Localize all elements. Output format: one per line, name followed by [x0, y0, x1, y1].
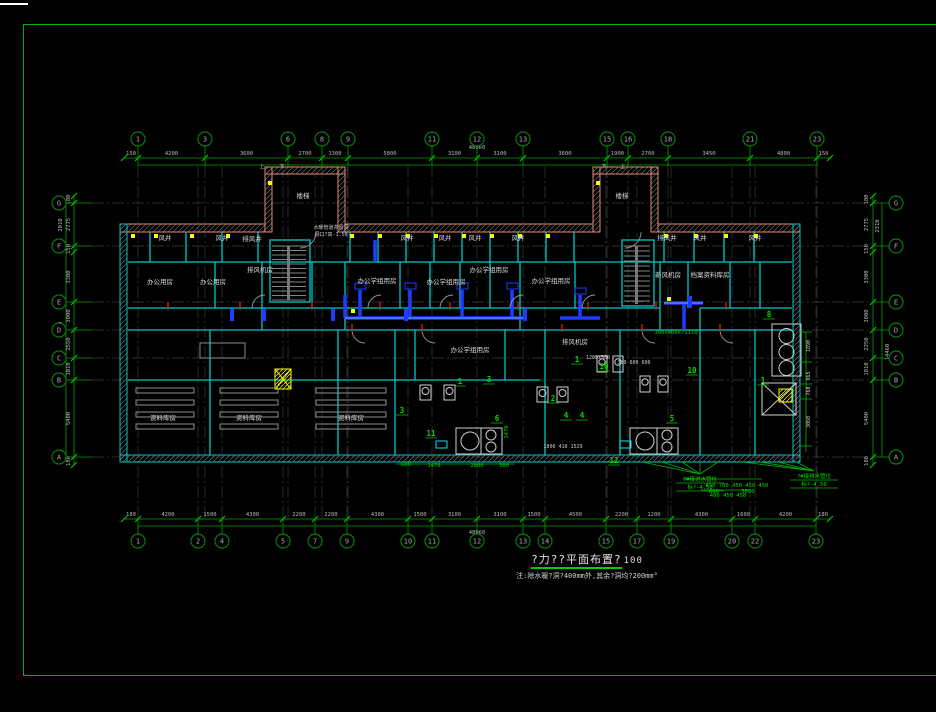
dimension-text: 1500 — [527, 512, 540, 518]
partitions-layer — [128, 232, 792, 455]
callout-number: 1 — [458, 377, 463, 386]
room-label: 风井 — [439, 233, 453, 242]
grid-bubble-label: 4 — [220, 538, 224, 546]
dimension-text: 4300 — [246, 512, 259, 518]
grid-bubble-label: C — [57, 355, 61, 363]
dimension-text: 5400 — [864, 412, 870, 425]
grid-bubble-label: 1 — [136, 136, 140, 144]
grid-bubble-label: 23 — [813, 136, 821, 144]
plan-dimension-text: 下 — [601, 164, 606, 170]
grid-bubble-layer: 1368911121315161821231245791011121314151… — [52, 132, 903, 548]
room-label: 排风井 — [657, 233, 677, 242]
hatched-shaft-box — [779, 389, 792, 402]
dimension-text: 180 — [864, 195, 870, 205]
dimension-text: 4200 — [161, 512, 174, 518]
drawing-note: 注:除水暖?洞?400mm外,其余?洞均?200mm° — [462, 571, 712, 581]
grid-bubble-label: C — [894, 355, 898, 363]
dimension-text: 150 — [819, 151, 829, 157]
air-handling-unit — [456, 428, 502, 454]
room-label: 风井 — [469, 233, 483, 242]
grid-bubble-label: 17 — [633, 538, 641, 546]
grid-bubble-label: 19 — [667, 538, 675, 546]
room-label: 资料库房 — [236, 413, 262, 422]
grid-bubble-label: 20 — [728, 538, 736, 546]
plan-dimension-text: 300 — [499, 463, 509, 469]
room-label: 新风机房 — [655, 270, 681, 279]
dimension-text: 3450 — [702, 151, 715, 157]
grid-bubble-label: D — [894, 327, 898, 335]
dimension-text: 150 — [66, 244, 72, 254]
callout-layer: 1326113441210181015 — [396, 310, 775, 465]
grid-bubble-label: E — [894, 299, 898, 307]
grid-bubble-label: 11 — [428, 538, 436, 546]
dimension-text: 1200 — [647, 512, 660, 518]
grid-bubble-label: 16 — [624, 136, 632, 144]
room-label-layer: 楼梯楼梯风井风井排风井风井风井风井风井排风井风井风井办公用房办公用房排风机房办公… — [147, 163, 812, 499]
annotation-text: 7#接进水管位 — [683, 475, 718, 483]
room-label: 风井 — [512, 233, 526, 242]
grid-bubble-label: B — [894, 377, 898, 385]
callout-number: 5 — [670, 414, 675, 423]
dimension-text: 150 — [126, 151, 136, 157]
dimension-text: 5400 — [66, 412, 72, 425]
room-label: 办公用房 — [147, 277, 173, 286]
dimension-text: 3600 — [558, 151, 571, 157]
dimension-text: 3600 — [240, 151, 253, 157]
room-label: 办公学组用房 — [532, 276, 571, 285]
grid-bubble-label: 10 — [404, 538, 412, 546]
dimension-text: 4500 — [569, 512, 582, 518]
callout-number: 10 — [687, 366, 697, 375]
dimension-outer: 2310 — [875, 219, 881, 232]
dimension-text: 180 — [126, 512, 136, 518]
plan-dimension-text: 3060 — [806, 416, 812, 428]
dimension-text: 3300 — [66, 270, 72, 283]
plan-dimension-text: 1200x500 — [586, 355, 610, 361]
plan-dimension-text: 1800 410 1529 — [543, 444, 582, 450]
plan-note: 洞口?高-1.50 — [314, 231, 347, 238]
grid-bubble-label: B — [57, 377, 61, 385]
plan-dimension-text: 600 — [401, 462, 411, 468]
grid-bubble-label: 13 — [519, 538, 527, 546]
room-label: 档案资料库房 — [691, 270, 730, 279]
grid-bubble-label: 12 — [473, 538, 481, 546]
grid-bubble-label: 3 — [203, 136, 207, 144]
dimension-text: 3000 — [66, 309, 72, 322]
grid-bubble-label: 15 — [603, 136, 611, 144]
grid-bubble-label: F — [57, 243, 61, 251]
callout-number: 8 — [767, 310, 772, 319]
plan-dimension-text: 400 450 450 — [710, 493, 746, 499]
dimension-text: 1010 — [864, 362, 870, 375]
dimension-text: 5800 — [383, 151, 396, 157]
room-label: 资料库房 — [338, 413, 364, 422]
dimension-text: 2775 — [864, 218, 870, 231]
grid-bubble-label: 12 — [473, 136, 481, 144]
callout-number: 12 — [609, 456, 618, 465]
plan-dimension-text: 上 — [620, 163, 625, 170]
callout-number: 3 — [400, 406, 405, 415]
callout-number: 4 — [580, 411, 585, 420]
grid-bubble-label: 13 — [519, 136, 527, 144]
dimension-text: 2700 — [298, 151, 311, 157]
grid-bubble-label: 21 — [746, 136, 754, 144]
room-label: 排风机房 — [562, 337, 588, 346]
grid-bubble-label: 22 — [751, 538, 759, 546]
dimension-text: 3300 — [864, 270, 870, 283]
room-label: 办公学组用房 — [427, 277, 466, 286]
grid-bubble-label: 1 — [136, 538, 140, 546]
plan-dimension-text: 1890 — [806, 340, 812, 352]
dimension-text: 2550 — [66, 337, 72, 350]
drawing-scale: 100 — [624, 556, 643, 566]
dimension-text: 4300 — [695, 512, 708, 518]
callout-number: 2 — [551, 394, 556, 403]
plan-dimension-text: 760 — [806, 386, 812, 395]
room-label: 办公学组用房 — [451, 345, 490, 354]
plan-dimension-text: 2800 — [470, 463, 483, 469]
room-label: 风井 — [749, 233, 763, 242]
dimension-text: 2775 — [66, 218, 72, 231]
dimension-text: 180 — [66, 456, 72, 466]
dimension-text: 180 — [818, 512, 828, 518]
grid-bubble-label: 5 — [281, 538, 285, 546]
callout-number: 10 — [599, 362, 609, 371]
drawing-title-block: ?力??平面布置?100 注:除水暖?洞?400mm外,其余?洞均?200mm° — [462, 551, 712, 581]
callout-number: 11 — [426, 429, 436, 438]
dimension-text: 4300 — [371, 512, 384, 518]
room-label: 办公学组用房 — [470, 265, 509, 274]
room-label: 排风井 — [242, 234, 262, 243]
plan-dimension-text: 300 600 600 — [617, 360, 650, 366]
callout-number: 6 — [495, 414, 500, 423]
grid-bubble-label: 15 — [602, 538, 610, 546]
plan-dimension-text: 上 — [259, 163, 264, 170]
dimension-text: 4800 — [777, 151, 790, 157]
grid-bubble-label: E — [57, 299, 61, 307]
dimension-text: 2200 — [615, 512, 628, 518]
dimension-text: 180 — [864, 456, 870, 466]
callout-number: 1 — [761, 376, 766, 385]
annotation-text: 标?-4.50 — [801, 480, 826, 488]
callout-number: 3 — [487, 375, 492, 384]
drawing-title: ?力??平面布置? — [531, 553, 622, 569]
plan-dimension-text: 450 700 450 450 450 — [706, 483, 769, 489]
plan-dimension-text: 865 — [806, 371, 812, 380]
callout-number: 1 — [575, 355, 580, 364]
room-label: 办公用房 — [200, 277, 226, 286]
dimension-text: 3100 — [493, 512, 506, 518]
floor-plan-canvas[interactable]: 1504200360027001300580031003100360019002… — [0, 0, 936, 712]
dimension-text: 1500 — [203, 512, 216, 518]
grid-bubble-label: 7 — [313, 538, 317, 546]
room-label: 风井 — [159, 233, 173, 242]
plan-dimension-text: 下 — [279, 164, 284, 170]
room-label: 资料库房 — [150, 413, 176, 422]
plan-note: 水暖管道井留洞 — [313, 224, 348, 231]
room-label: 办公学组用房 — [358, 276, 397, 285]
grid-bubble-label: 11 — [428, 136, 436, 144]
dimension-text: 2700 — [641, 151, 654, 157]
dimension-text: 4200 — [779, 512, 792, 518]
grid-bubble-label: 9 — [345, 538, 349, 546]
plan-dimension-text: 300x400x?1110 — [654, 330, 697, 336]
dimension-text: 1900 — [611, 151, 624, 157]
grid-bubble-label: 23 — [812, 538, 820, 546]
dimension-text: 2250 — [864, 337, 870, 350]
dimension-text: 1300 — [328, 151, 341, 157]
grid-bubble-label: F — [894, 243, 898, 251]
grid-bubble-label: 2 — [196, 538, 200, 546]
grid-bubble-label: D — [57, 327, 61, 335]
cad-viewport[interactable]: 1504200360027001300580031003100360019002… — [0, 0, 936, 712]
grid-bubble-label: G — [894, 200, 898, 208]
grid-bubble-label: 14 — [541, 538, 549, 546]
room-label: 排风机房 — [247, 265, 273, 274]
dimension-text: 150 — [864, 244, 870, 254]
plan-dimension-text: 1470 — [504, 425, 510, 438]
grid-bubble-label: 6 — [286, 136, 290, 144]
ducts-layer — [230, 240, 703, 330]
dimension-text: 1600 — [737, 512, 750, 518]
dimension-text: 2200 — [324, 512, 337, 518]
dimension-layer: 1504200360027001300580031003100360019002… — [58, 145, 891, 536]
room-label: 楼梯 — [297, 191, 311, 200]
grid-bubble-label: G — [57, 200, 61, 208]
annotation-text: 标?-4.50 — [687, 483, 712, 491]
annotation-text: ?#接排水管位 — [797, 472, 832, 480]
grid-bubble-label: 8 — [320, 136, 324, 144]
room-label: 风井 — [694, 233, 708, 242]
grid-bubble-label: 18 — [664, 136, 672, 144]
dimension-text: 1010 — [66, 362, 72, 375]
storage-racks — [136, 388, 386, 429]
dimension-text: 3100 — [448, 512, 461, 518]
grid-bubble-label: 9 — [346, 136, 350, 144]
room-label: 风井 — [216, 233, 230, 242]
dimension-outer: 2010 — [58, 218, 64, 231]
dimension-text: 4200 — [165, 151, 178, 157]
room-label: 楼梯 — [616, 191, 630, 200]
callout-number: 4 — [564, 411, 569, 420]
dimension-text: 1500 — [413, 512, 426, 518]
dimension-text: 3000 — [864, 309, 870, 322]
plan-dimension-text: 1470 — [427, 463, 440, 469]
dimension-text: 3100 — [448, 151, 461, 157]
room-label: 风井 — [401, 233, 415, 242]
dimension-text: 2200 — [292, 512, 305, 518]
dimension-text: 3100 — [493, 151, 506, 157]
